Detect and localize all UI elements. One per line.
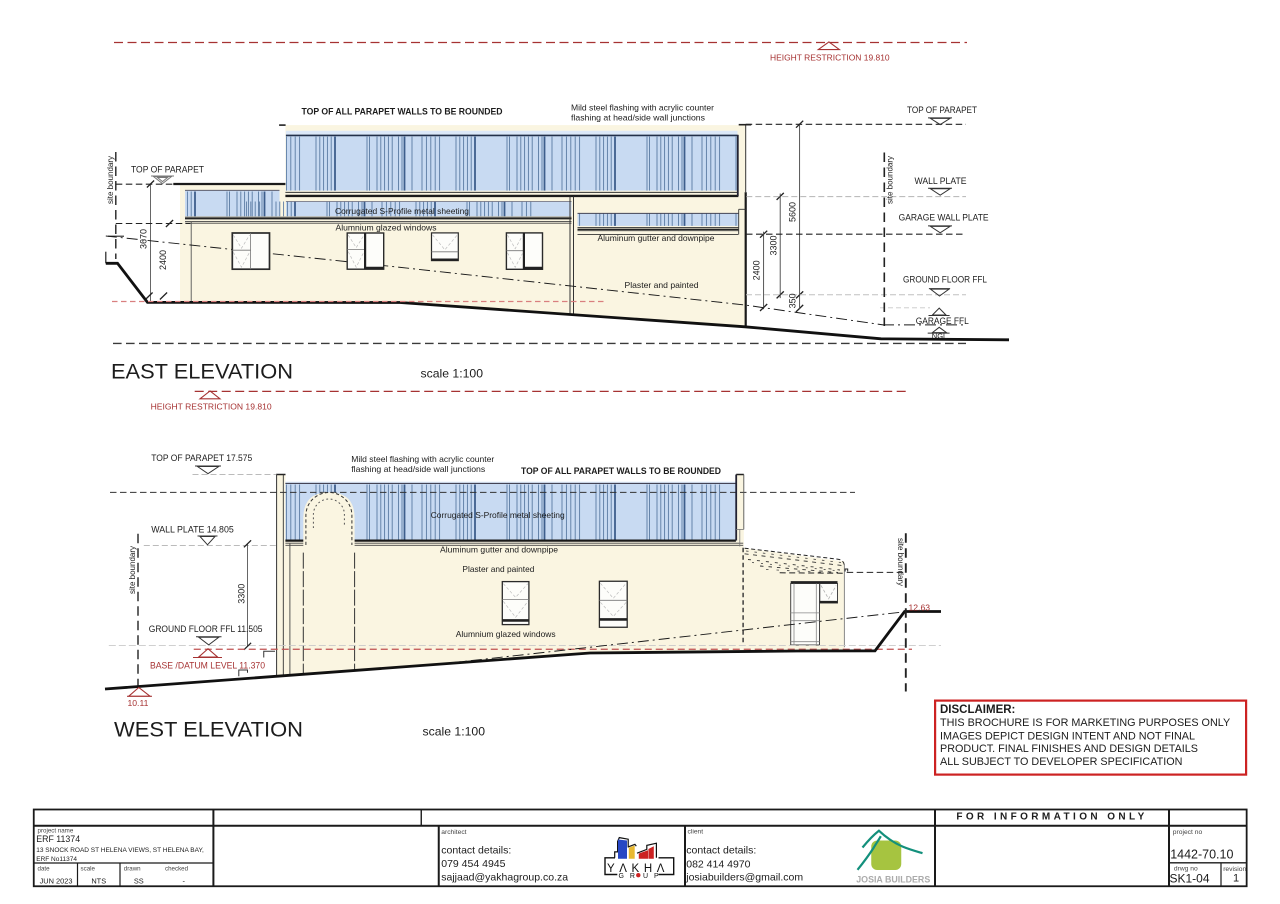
svg-text:contact details:: contact details: — [686, 845, 756, 857]
svg-text:site boundary: site boundary — [106, 156, 115, 204]
svg-text:GARAGE FFL: GARAGE FFL — [916, 316, 969, 326]
svg-text:project no: project no — [1173, 829, 1203, 836]
svg-text:TOP OF PARAPET: TOP OF PARAPET — [907, 105, 977, 115]
svg-text:3670: 3670 — [138, 229, 148, 249]
svg-text:Alumnium glazed windows: Alumnium glazed windows — [456, 629, 556, 639]
svg-text:HEIGHT RESTRICTION 19.810: HEIGHT RESTRICTION 19.810 — [770, 53, 890, 63]
svg-text:GROUND FLOOR FFL: GROUND FLOOR FFL — [903, 275, 987, 285]
svg-text:FOR INFORMATION ONLY: FOR INFORMATION ONLY — [956, 812, 1147, 823]
svg-text:Aluminum gutter and downpipe: Aluminum gutter and downpipe — [440, 545, 558, 555]
svg-text:Mild steel flashing with acryl: Mild steel flashing with acrylic counter — [351, 454, 494, 464]
svg-text:NGL: NGL — [932, 331, 947, 340]
svg-text:3300: 3300 — [768, 235, 778, 255]
svg-text:Corrugated S-Profile metal she: Corrugated S-Profile metal sheeting — [431, 510, 565, 520]
svg-text:10.11: 10.11 — [128, 698, 149, 708]
svg-text:sajjaad@yakhagroup.co.za: sajjaad@yakhagroup.co.za — [441, 872, 568, 884]
svg-text:NTS: NTS — [91, 877, 106, 886]
svg-text:ERF No11374: ERF No11374 — [36, 856, 77, 863]
svg-text:scale 1:100: scale 1:100 — [423, 725, 486, 739]
svg-text:U P: U P — [643, 873, 661, 880]
svg-text:EAST ELEVATION: EAST ELEVATION — [111, 360, 293, 384]
svg-text:Plaster and painted: Plaster and painted — [625, 280, 699, 290]
svg-text:contact details:: contact details: — [441, 845, 511, 857]
svg-text:Alumnium glazed windows: Alumnium glazed windows — [336, 223, 437, 233]
svg-text:WEST ELEVATION: WEST ELEVATION — [114, 718, 303, 742]
svg-text:Aluminum gutter and downpipe: Aluminum gutter and downpipe — [598, 233, 715, 243]
svg-text:TOP OF PARAPET: TOP OF PARAPET — [131, 165, 204, 175]
svg-text:3300: 3300 — [236, 584, 246, 604]
svg-text:checked: checked — [165, 865, 189, 872]
svg-text:G R: G R — [619, 873, 637, 880]
svg-text:BASE /DATUM LEVEL 11.370: BASE /DATUM LEVEL 11.370 — [150, 661, 265, 671]
svg-text:ALL SUBJECT TO DEVELOPER SPECI: ALL SUBJECT TO DEVELOPER SPECIFICATION — [940, 756, 1182, 768]
svg-text:079 454 4945: 079 454 4945 — [441, 858, 505, 870]
svg-text:TOP OF ALL PARAPET WALLS TO BE: TOP OF ALL PARAPET WALLS TO BE ROUNDED — [302, 107, 503, 117]
svg-text:1: 1 — [1233, 873, 1239, 885]
svg-text:Corrugated S-Profile metal she: Corrugated S-Profile metal sheeting — [335, 206, 469, 216]
svg-text:IMAGES DEPICT DESIGN INTENT AN: IMAGES DEPICT DESIGN INTENT AND NOT FINA… — [940, 731, 1195, 743]
svg-text:DISCLAIMER:: DISCLAIMER: — [940, 704, 1015, 716]
svg-text:1442-70.10: 1442-70.10 — [1170, 848, 1233, 862]
svg-text:350: 350 — [788, 293, 798, 308]
svg-text:PRODUCT. FINAL FINISHES AND DE: PRODUCT. FINAL FINISHES AND DESIGN DETAI… — [940, 743, 1198, 755]
svg-text:site boundary: site boundary — [886, 156, 895, 204]
svg-text:082 414 4970: 082 414 4970 — [686, 858, 750, 870]
svg-text:architect: architect — [441, 829, 466, 836]
svg-text:JOSIA BUILDERS: JOSIA BUILDERS — [856, 875, 930, 885]
svg-text:TOP OF ALL PARAPET WALLS TO BE: TOP OF ALL PARAPET WALLS TO BE ROUNDED — [521, 466, 721, 476]
svg-text:WALL PLATE 14.805: WALL PLATE 14.805 — [151, 525, 234, 535]
svg-text:ERF 11374: ERF 11374 — [36, 834, 80, 844]
svg-text:SK1-04: SK1-04 — [1170, 872, 1210, 886]
svg-text:JUN 2023: JUN 2023 — [40, 877, 73, 886]
svg-text:scale: scale — [81, 865, 96, 872]
svg-text:2400: 2400 — [752, 260, 762, 280]
svg-text:site boundary: site boundary — [128, 546, 137, 594]
svg-text:site boundary: site boundary — [896, 538, 905, 586]
svg-text:flashing at head/side wall jun: flashing at head/side wall junctions — [351, 464, 485, 474]
svg-text:client: client — [688, 829, 704, 836]
svg-text:HEIGHT RESTRICTION 19.810: HEIGHT RESTRICTION 19.810 — [151, 401, 272, 411]
svg-text:SS: SS — [134, 877, 144, 886]
svg-text:josiabuilders@gmail.com: josiabuilders@gmail.com — [685, 872, 803, 884]
svg-text:THIS BROCHURE IS FOR MARKETING: THIS BROCHURE IS FOR MARKETING PURPOSES … — [940, 717, 1230, 729]
svg-text:GARAGE WALL PLATE: GARAGE WALL PLATE — [899, 213, 989, 223]
svg-text:Plaster and painted: Plaster and painted — [462, 564, 534, 574]
svg-text:flashing at head/side wall jun: flashing at head/side wall junctions — [571, 113, 705, 123]
svg-text:13 SNOCK ROAD ST HELENA VIEWS: 13 SNOCK ROAD ST HELENA VIEWS, ST HELENA… — [36, 847, 204, 854]
svg-text:2400: 2400 — [158, 250, 168, 270]
svg-text:scale 1:100: scale 1:100 — [421, 367, 484, 381]
svg-text:TOP OF PARAPET 17.575: TOP OF PARAPET 17.575 — [151, 453, 252, 463]
svg-text:date: date — [38, 865, 51, 872]
svg-text:Mild steel flashing with acryl: Mild steel flashing with acrylic counter — [571, 103, 714, 113]
svg-text:drawn: drawn — [124, 865, 141, 872]
svg-text:5600: 5600 — [788, 202, 798, 222]
svg-text:GROUND FLOOR FFL 11.505: GROUND FLOOR FFL 11.505 — [149, 624, 263, 634]
svg-text:12.63: 12.63 — [909, 602, 931, 612]
svg-text:WALL PLATE: WALL PLATE — [915, 176, 967, 186]
